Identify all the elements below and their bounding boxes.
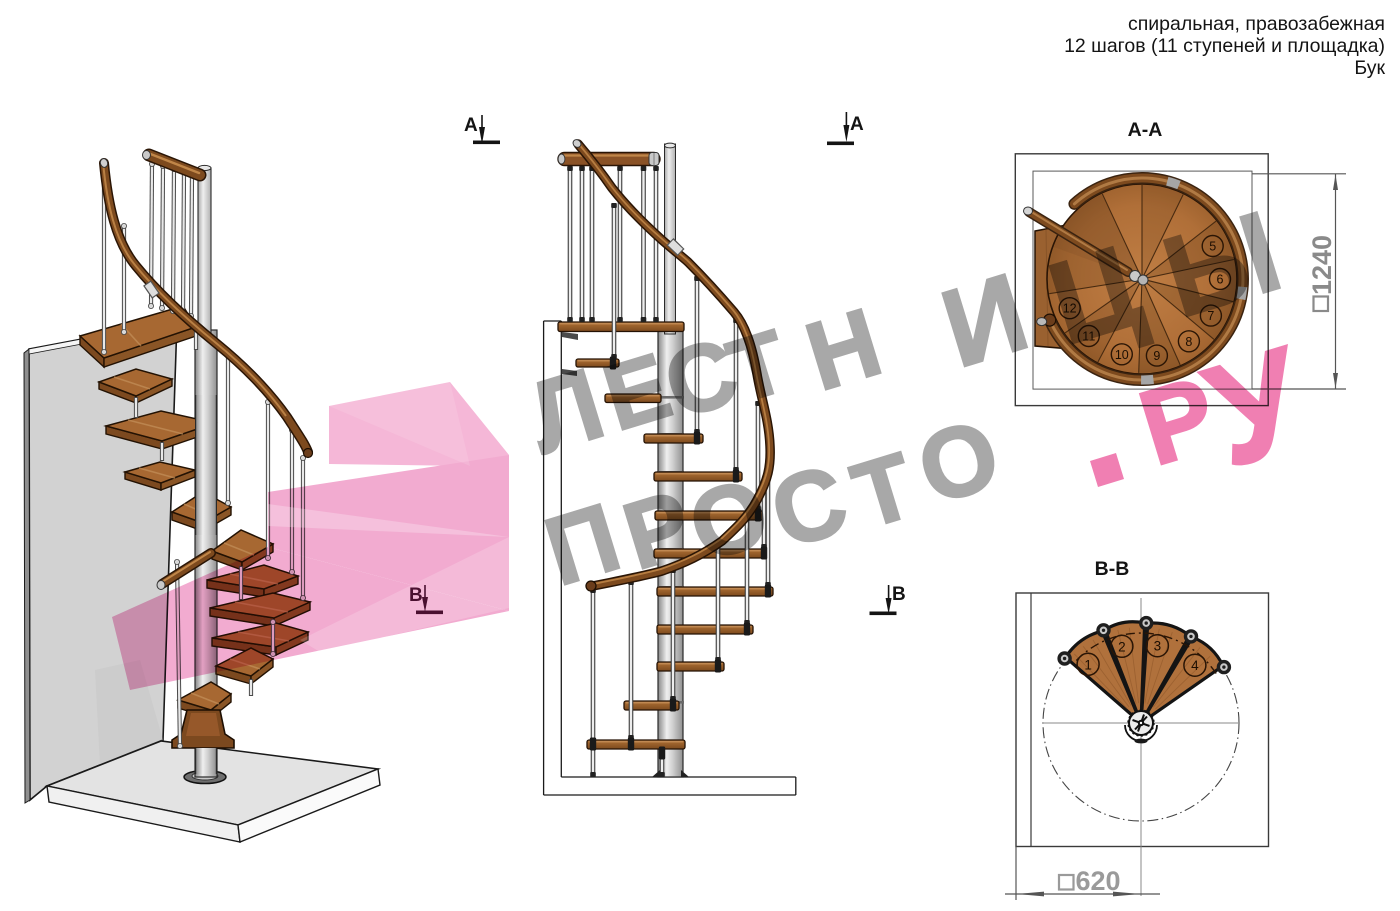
- svg-text:А: А: [464, 115, 478, 136]
- svg-text:В: В: [409, 585, 423, 606]
- svg-text:2: 2: [1118, 639, 1126, 654]
- svg-text:В-В: В-В: [1095, 558, 1130, 580]
- svg-text:3: 3: [1154, 639, 1162, 654]
- svg-text:А-А: А-А: [1128, 119, 1163, 141]
- svg-text:В: В: [892, 584, 906, 605]
- svg-text:1240: 1240: [1307, 235, 1337, 295]
- svg-text:1: 1: [1084, 657, 1092, 672]
- svg-text:А: А: [850, 114, 864, 135]
- svg-text:спиральная, правозабежная: спиральная, правозабежная: [1128, 13, 1385, 35]
- svg-text:4: 4: [1191, 658, 1199, 673]
- svg-text:Бук: Бук: [1354, 57, 1385, 79]
- svg-text:12 шагов (11 ступеней и площад: 12 шагов (11 ступеней и площадка): [1064, 35, 1385, 57]
- svg-text:620: 620: [1075, 866, 1120, 896]
- svg-text:9: 9: [1153, 349, 1160, 363]
